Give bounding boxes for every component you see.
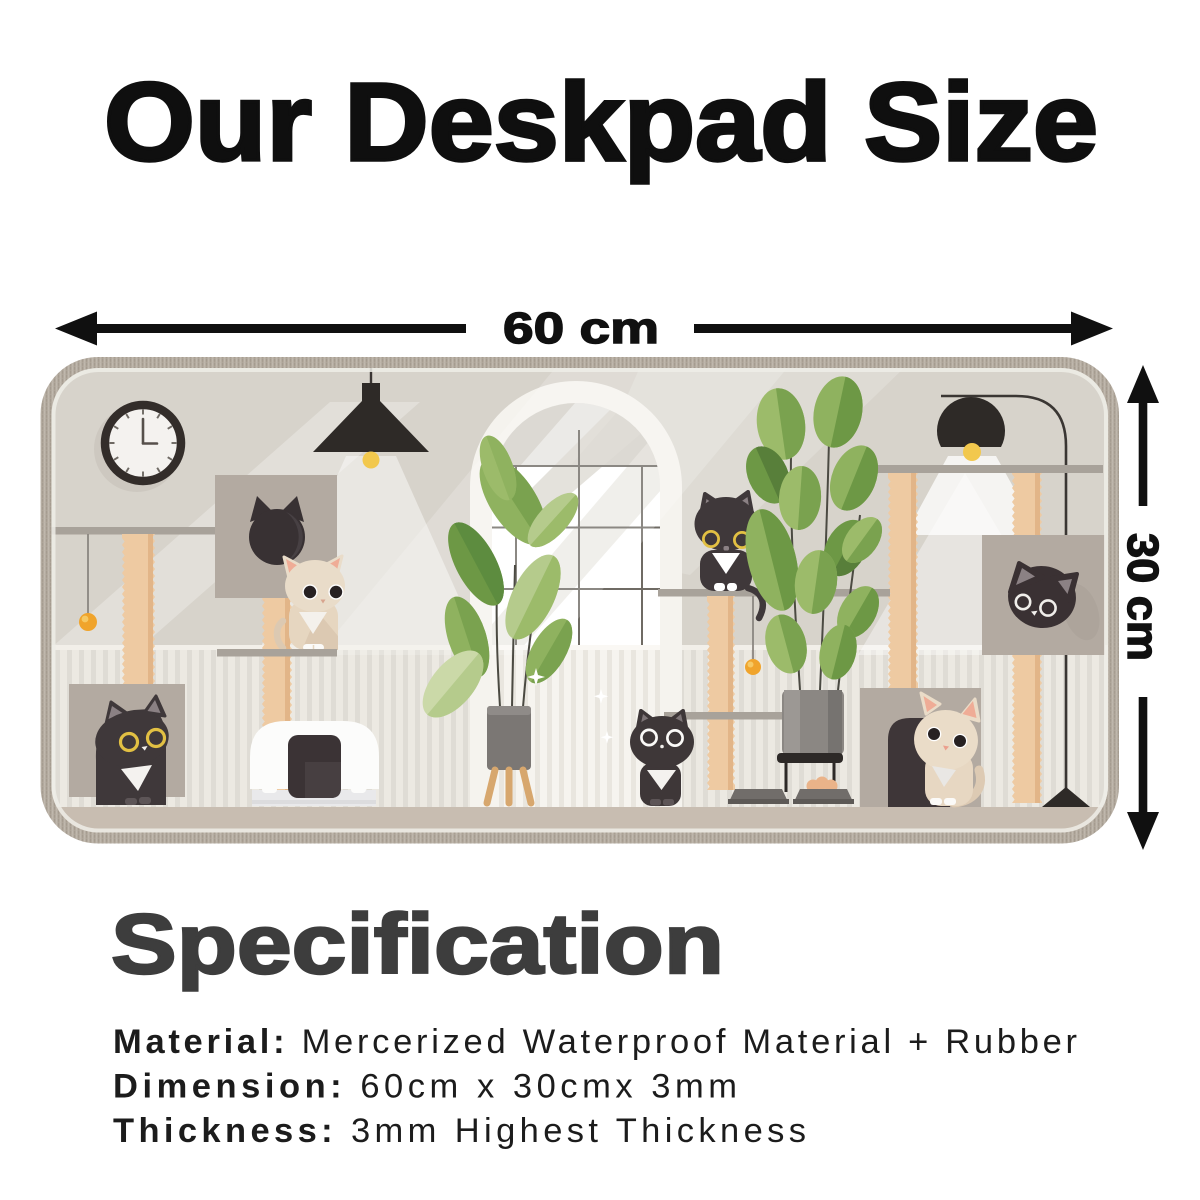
svg-text:Our Deskpad Size: Our Deskpad Size <box>104 61 1098 184</box>
svg-text:Dimension: 60cm x 30cmx 3mm: Dimension: 60cm x 30cmx 3mm <box>113 1068 737 1106</box>
svg-text:30 cm: 30 cm <box>1118 533 1167 661</box>
svg-text:Specification: Specification <box>111 897 724 991</box>
svg-text:60 cm: 60 cm <box>503 304 659 353</box>
svg-text:Thickness: 3mm Highest Thickn: Thickness: 3mm Highest Thickness <box>113 1112 806 1150</box>
